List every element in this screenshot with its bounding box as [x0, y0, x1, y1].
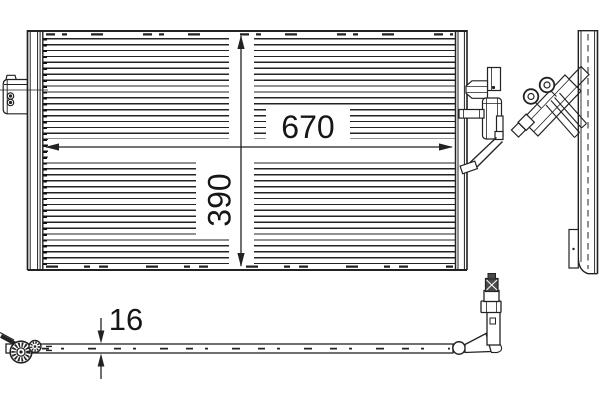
annotation-clearings — [48, 36, 455, 265]
side-view-bar — [6, 344, 453, 353]
left-mounting-tab — [0, 75, 48, 114]
side-view-connector-head — [486, 274, 499, 292]
dimension-thickness: 16 — [98, 302, 144, 379]
drier-bracket-arm — [470, 138, 497, 164]
condenser-technical-drawing: 670 390 — [0, 0, 600, 400]
drawing-overlay: 670 390 — [0, 0, 600, 400]
right-header — [456, 30, 468, 270]
dimension-thickness-label: 16 — [109, 302, 143, 337]
diagonal-pipe-fitting — [511, 67, 589, 138]
right-mounting-bracket — [569, 30, 598, 274]
dimension-width-label: 670 — [281, 109, 334, 145]
left-header — [28, 30, 43, 270]
condenser-side-view — [0, 274, 502, 363]
dimension-height-label: 390 — [202, 173, 238, 226]
side-view-right-pipe — [453, 274, 502, 355]
receiver-drier — [459, 68, 503, 174]
